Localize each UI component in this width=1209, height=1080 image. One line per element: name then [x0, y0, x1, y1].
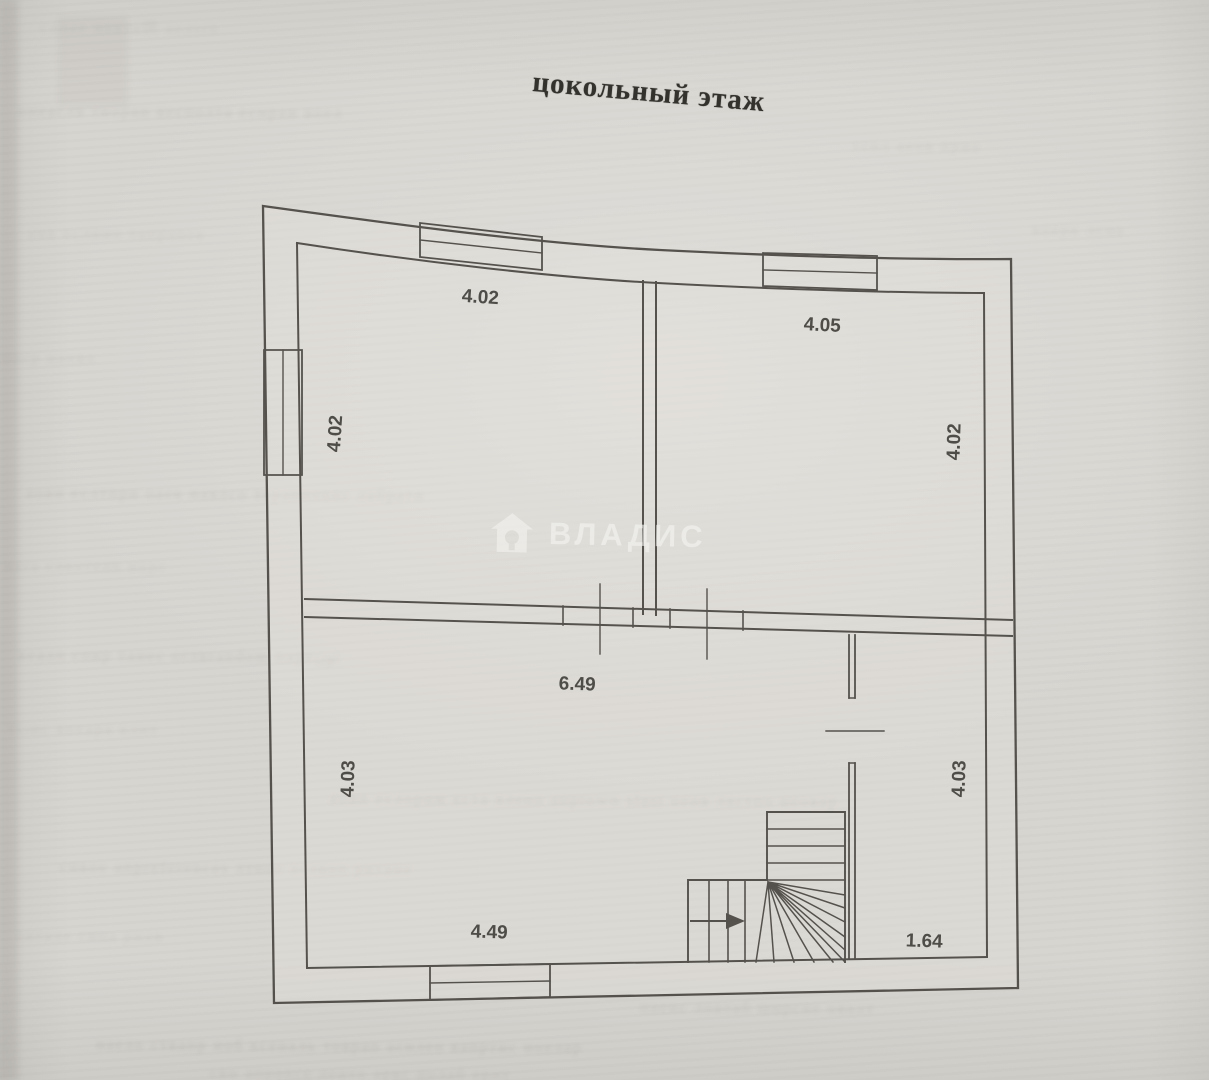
- floor-plan-svg: 4.02 4.02 4.05 4.02 6.49 4.03 4.49 4.03 …: [0, 0, 1209, 1080]
- dim-hall-bottom-width: 4.49: [470, 921, 508, 943]
- dim-upper-left-room-depth: 4.02: [324, 414, 348, 452]
- dim-right-room-width: 1.64: [905, 930, 943, 952]
- scanned-floorplan-page: слпае новта供 аелsrn онеаслв тиоран веспо…: [0, 0, 1209, 1080]
- dim-hall-depth: 4.03: [337, 760, 359, 798]
- dim-upper-right-room-depth: 4.02: [943, 423, 965, 461]
- dim-right-room-depth: 4.03: [948, 760, 970, 798]
- dim-hall-width: 6.49: [558, 673, 596, 695]
- plan-paper-area: [263, 206, 1018, 1003]
- dim-upper-right-room-width: 4.05: [803, 314, 841, 337]
- dim-upper-left-room-width: 4.02: [461, 286, 499, 310]
